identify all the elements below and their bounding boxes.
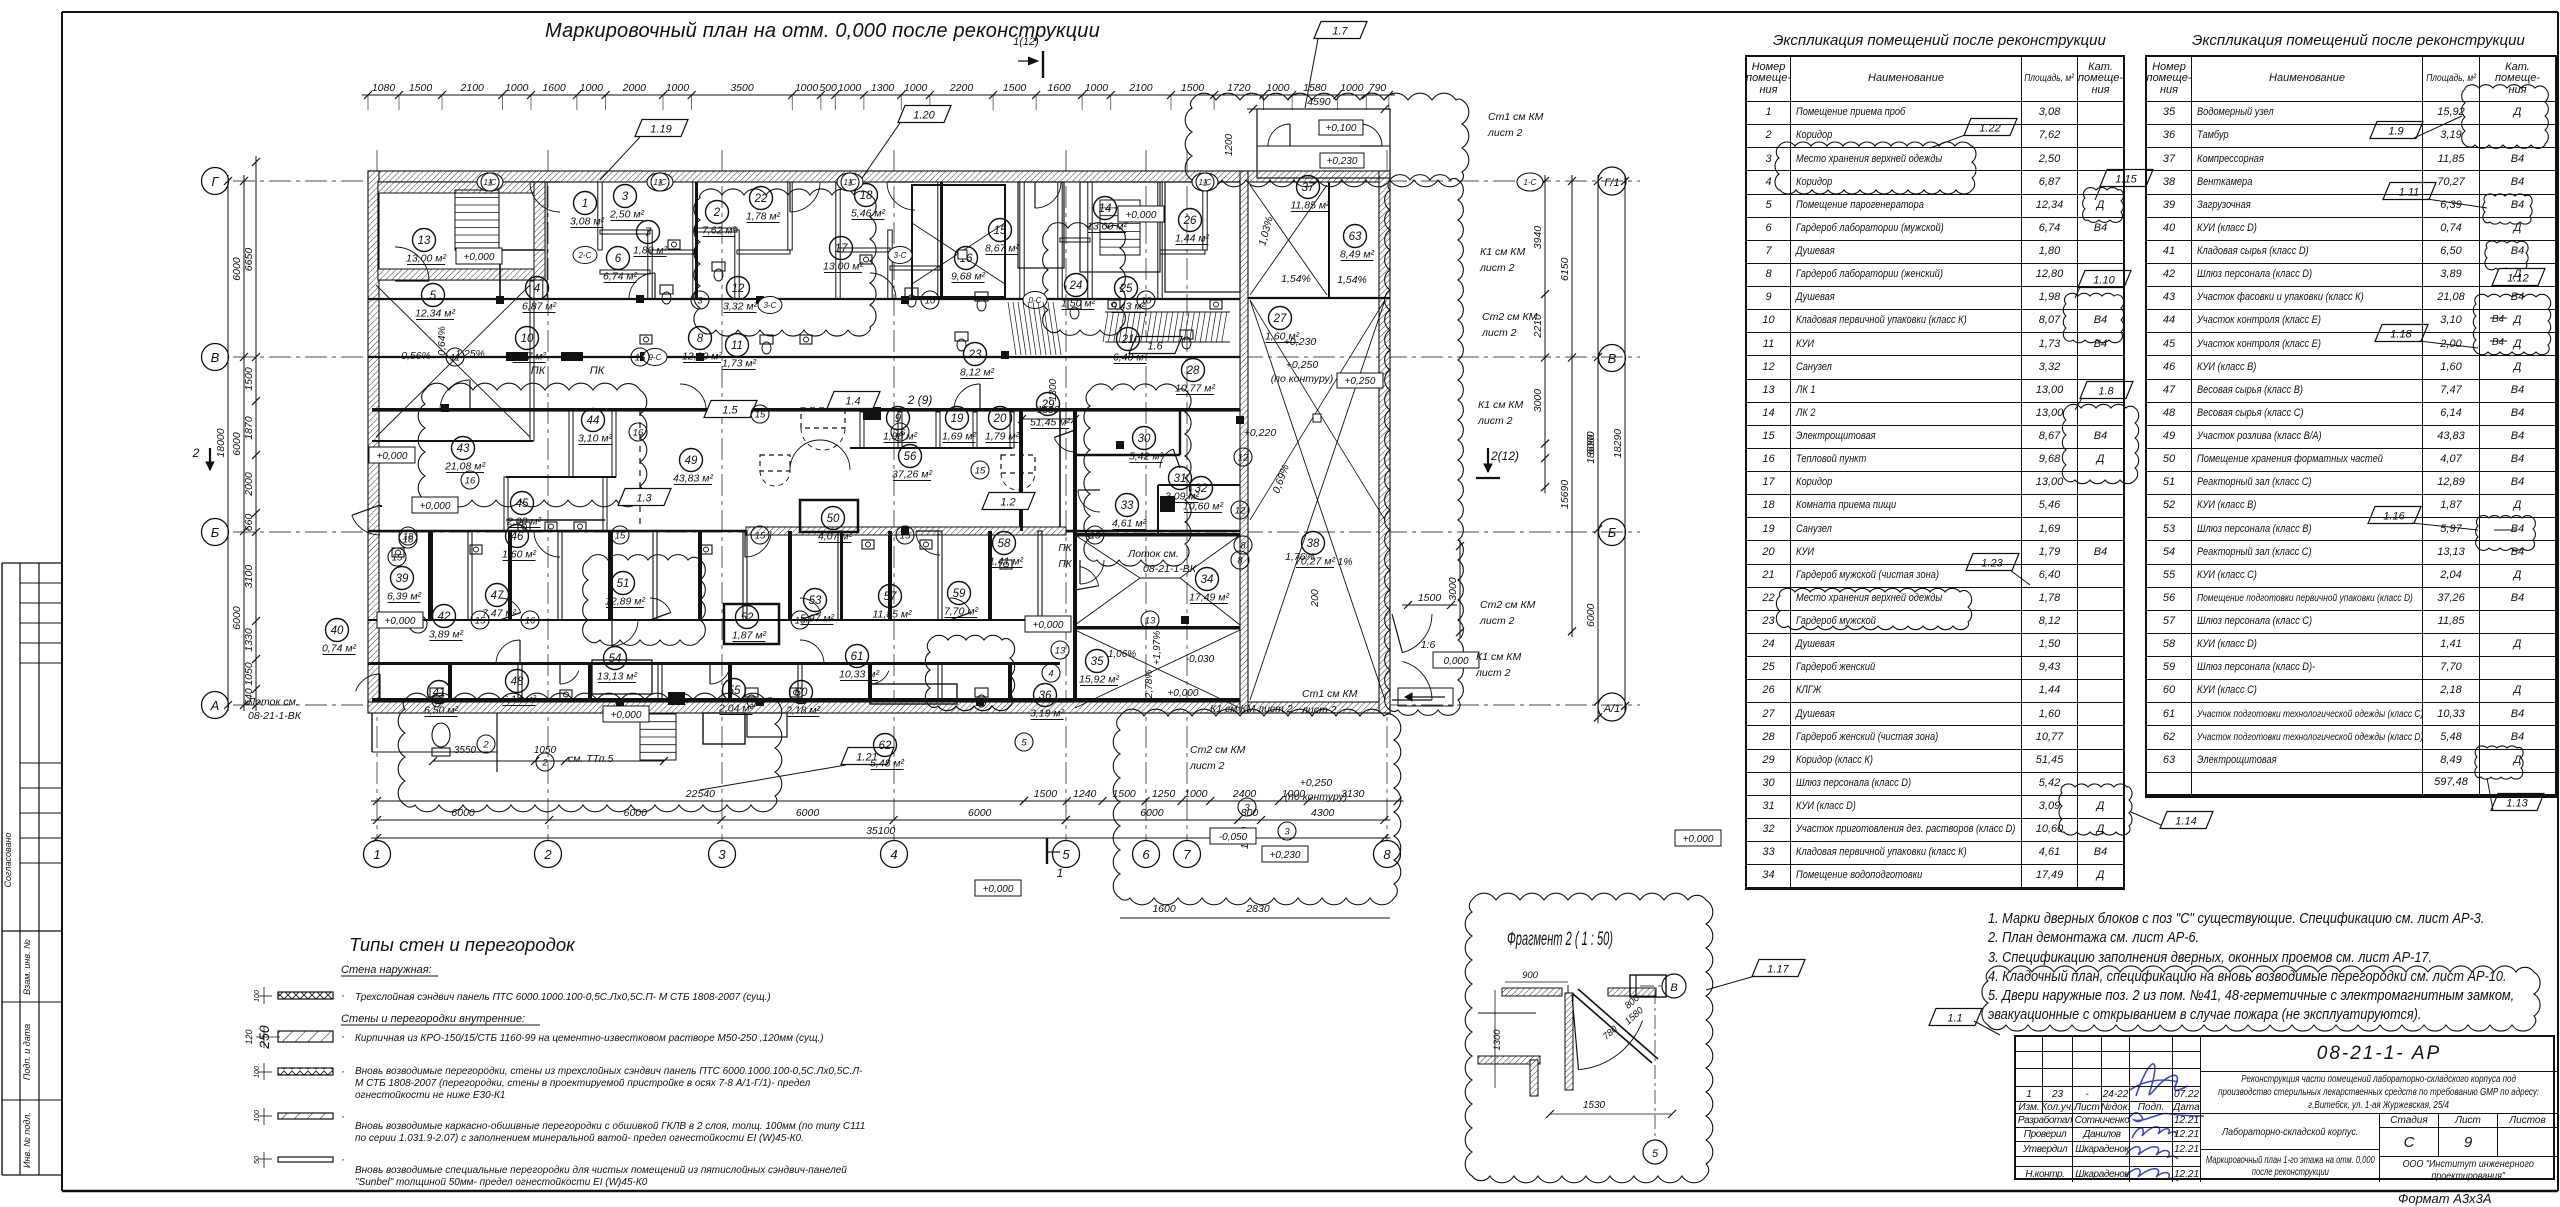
svg-text:51: 51 (617, 578, 630, 590)
svg-text:15: 15 (900, 531, 911, 542)
svg-text:18290: 18290 (1612, 429, 1624, 458)
svg-text:+0,000: +0,000 (377, 451, 408, 462)
svg-text:·: · (341, 1064, 345, 1078)
svg-text:16: 16 (633, 428, 644, 439)
svg-text:ПК: ПК (1058, 543, 1072, 554)
svg-text:1.20: 1.20 (913, 110, 935, 122)
svg-text:12,89 м²: 12,89 м² (605, 596, 645, 608)
svg-text:3-С: 3-С (764, 301, 777, 310)
svg-text:27: 27 (1273, 313, 1287, 325)
svg-text:1: 1 (582, 198, 588, 210)
svg-text:1: 1 (373, 847, 380, 862)
svg-text:24: 24 (1069, 280, 1083, 292)
svg-text:2: 2 (543, 847, 552, 862)
svg-text:1300: 1300 (1492, 1029, 1503, 1051)
svg-text:3-С: 3-С (894, 251, 907, 260)
svg-text:1000: 1000 (580, 82, 604, 94)
svg-text:1,54%: 1,54% (1281, 273, 1311, 285)
svg-text:+0,250: +0,250 (1286, 359, 1319, 371)
svg-text:12,80 м²: 12,80 м² (682, 351, 722, 363)
svg-text:6,74 м²: 6,74 м² (603, 271, 638, 283)
svg-text:7,62 м²: 7,62 м² (702, 225, 737, 237)
svg-text:Инв. № подл.: Инв. № подл. (22, 1112, 32, 1168)
svg-text:1500: 1500 (1003, 82, 1027, 94)
svg-text:1.13: 1.13 (2506, 798, 2528, 810)
svg-text:0,64%: 0,64% (436, 326, 448, 356)
svg-text:+0,000: +0,000 (1168, 688, 1199, 699)
svg-text:2100: 2100 (460, 82, 485, 94)
svg-text:3550: 3550 (454, 745, 477, 756)
svg-text:15: 15 (994, 225, 1007, 237)
svg-text:15: 15 (755, 410, 766, 421)
svg-text:6,87 м²: 6,87 м² (522, 301, 557, 313)
svg-text:15: 15 (475, 616, 486, 627)
svg-text:15: 15 (635, 353, 646, 364)
svg-text:100: 100 (254, 1066, 261, 1078)
svg-text:15: 15 (615, 531, 626, 542)
svg-text:лист 2: лист 2 (1475, 667, 1511, 679)
svg-text:1,60 м²: 1,60 м² (502, 549, 537, 561)
svg-text:48: 48 (511, 676, 524, 688)
svg-text:1,73 м²: 1,73 м² (722, 358, 757, 370)
svg-text:К1 см КМ: К1 см КМ (1478, 399, 1523, 411)
svg-text:6000: 6000 (231, 606, 243, 630)
svg-text:2: 2 (192, 446, 200, 460)
svg-text:7: 7 (1183, 847, 1191, 862)
svg-text:62: 62 (879, 740, 892, 752)
svg-text:3500: 3500 (730, 82, 754, 94)
svg-text:+0,230: +0,230 (1270, 850, 1301, 861)
svg-text:Стена наружная:: Стена наружная: (341, 964, 432, 976)
svg-text:+0,000: +0,000 (1126, 210, 1157, 221)
svg-text:5: 5 (1062, 847, 1070, 862)
svg-text:16: 16 (465, 476, 476, 487)
svg-text:Вновь возводимые перегородки,: Вновь возводимые перегородки, стены из т… (355, 1066, 863, 1077)
svg-text:1.17: 1.17 (1767, 964, 1789, 976)
svg-text:21: 21 (1121, 334, 1135, 346)
svg-text:17: 17 (835, 243, 848, 255)
svg-text:В: В (1670, 982, 1677, 994)
svg-text:52: 52 (741, 612, 754, 624)
svg-text:1,69 м²: 1,69 м² (942, 431, 977, 443)
svg-text:5: 5 (1021, 738, 1027, 749)
svg-text:Фрагмент 2 ( 1 : 50): Фрагмент 2 ( 1 : 50) (1507, 929, 1613, 950)
svg-text:1000: 1000 (1340, 82, 1364, 94)
svg-text:47: 47 (491, 590, 504, 602)
svg-text:1720: 1720 (1227, 82, 1251, 94)
svg-text:·: · (341, 1029, 345, 1043)
svg-text:31: 31 (1174, 473, 1187, 485)
svg-text:1.4: 1.4 (845, 396, 860, 408)
svg-text:6,50 м²: 6,50 м² (424, 705, 459, 717)
svg-text:2: 2 (541, 758, 548, 769)
svg-text:5: 5 (1652, 1148, 1659, 1160)
svg-text:1,78 м²: 1,78 м² (746, 211, 781, 223)
svg-text:Г/1: Г/1 (1604, 177, 1619, 189)
svg-text:1050: 1050 (243, 662, 255, 686)
svg-text:120: 120 (244, 1029, 254, 1044)
svg-text:14: 14 (1099, 203, 1112, 215)
svg-text:0-С: 0-С (1029, 296, 1042, 305)
svg-text:8: 8 (1383, 847, 1391, 862)
svg-text:2,50 м²: 2,50 м² (609, 209, 645, 221)
svg-text:(по контуру): (по контуру) (1271, 373, 1334, 385)
svg-text:Лоток см.: Лоток см. (1127, 548, 1179, 560)
svg-text:1: 1 (1057, 866, 1064, 880)
svg-text:1000: 1000 (1085, 82, 1109, 94)
svg-text:2200: 2200 (949, 82, 974, 94)
svg-text:2: 2 (713, 207, 721, 219)
svg-text:12: 12 (1238, 453, 1249, 464)
svg-text:58: 58 (998, 538, 1011, 550)
svg-text:43,83 м²: 43,83 м² (673, 473, 713, 485)
svg-text:·: · (341, 1152, 345, 1166)
svg-text:61: 61 (851, 651, 864, 663)
svg-text:7: 7 (645, 227, 652, 239)
svg-text:Согласовано: Согласовано (3, 833, 13, 888)
svg-text:15690: 15690 (1559, 480, 1571, 509)
svg-text:8: 8 (697, 333, 704, 345)
svg-text:23: 23 (968, 349, 982, 361)
svg-text:1.5: 1.5 (722, 405, 738, 417)
svg-text:4: 4 (1048, 669, 1053, 680)
svg-text:100: 100 (254, 1110, 261, 1122)
svg-text:17,49 м²: 17,49 м² (1189, 592, 1229, 604)
svg-text:1000: 1000 (505, 82, 529, 94)
svg-text:В: В (1608, 351, 1617, 366)
svg-text:6,14 м²: 6,14 м² (502, 694, 537, 706)
svg-text:Ст1 см КМ: Ст1 см КМ (1488, 111, 1544, 123)
svg-text:Кирпичная из КРО-150/15/СТБ 11: Кирпичная из КРО-150/15/СТБ 1160-99 на ц… (355, 1033, 824, 1044)
svg-text:11,85 м²: 11,85 м² (872, 609, 912, 621)
svg-text:1870: 1870 (243, 416, 255, 440)
svg-text:1000: 1000 (838, 82, 862, 94)
svg-text:6000: 6000 (1585, 431, 1597, 455)
svg-text:см. ТТп.5: см. ТТп.5 (568, 753, 613, 765)
svg-text:1-С: 1-С (1524, 178, 1537, 187)
svg-text:К1 см КМ: К1 см КМ (1480, 246, 1525, 258)
svg-text:6000: 6000 (451, 807, 475, 819)
svg-text:56: 56 (904, 451, 917, 463)
svg-text:49: 49 (685, 455, 698, 467)
svg-text:лист 2: лист 2 (1481, 327, 1517, 339)
svg-text:900: 900 (1522, 970, 1539, 981)
svg-text:Вновь возводимые каркасно-обши: Вновь возводимые каркасно-обшивные перег… (355, 1120, 865, 1132)
svg-text:1530: 1530 (1583, 1100, 1606, 1111)
svg-text:2 (9): 2 (9) (907, 393, 933, 407)
svg-text:43: 43 (457, 443, 470, 455)
svg-text:40: 40 (331, 625, 344, 637)
svg-text:32: 32 (1195, 483, 1208, 495)
svg-text:+0,000: +0,000 (385, 616, 416, 627)
svg-text:1000: 1000 (904, 82, 928, 94)
svg-text:13,00 м²: 13,00 м² (406, 253, 446, 265)
svg-text:20: 20 (993, 413, 1007, 425)
svg-text:9-С: 9-С (649, 353, 662, 362)
svg-text:1: 1 (1202, 178, 1207, 189)
svg-text:ПК: ПК (531, 365, 546, 377)
svg-text:60: 60 (795, 687, 808, 699)
svg-text:790: 790 (1369, 82, 1387, 94)
svg-text:5,48 м²: 5,48 м² (870, 758, 905, 770)
svg-text:1330: 1330 (243, 628, 255, 652)
svg-text:53: 53 (809, 595, 822, 607)
svg-text:37: 37 (1302, 182, 1315, 194)
svg-text:+0,250: +0,250 (1345, 376, 1376, 387)
svg-text:13: 13 (418, 235, 431, 247)
svg-text:54: 54 (609, 653, 622, 665)
svg-text:15: 15 (755, 531, 766, 542)
svg-text:8: 8 (1237, 556, 1243, 567)
svg-text:08-21-1-ВК: 08-21-1-ВК (248, 710, 302, 722)
svg-text:39: 39 (396, 573, 409, 585)
svg-text:4300: 4300 (1311, 807, 1335, 819)
svg-text:ПК: ПК (1058, 559, 1072, 570)
svg-text:50: 50 (254, 1156, 261, 1164)
svg-text:8,67 м²: 8,67 м² (985, 243, 1020, 255)
svg-text:Ст2 см КМ: Ст2 см КМ (1482, 311, 1538, 323)
svg-text:22: 22 (754, 193, 768, 205)
svg-text:55: 55 (728, 685, 741, 697)
svg-text:6: 6 (615, 253, 622, 265)
svg-text:Взам. инв. №: Взам. инв. № (22, 939, 32, 995)
svg-text:+0,000: +0,000 (420, 501, 451, 512)
svg-text:1580: 1580 (1303, 82, 1327, 94)
svg-text:2100: 2100 (1128, 82, 1153, 94)
svg-text:4: 4 (534, 283, 540, 295)
svg-text:Стены и перегородки внутренние: Стены и перегородки внутренние: (341, 1013, 525, 1025)
svg-text:лист 2: лист 2 (1487, 127, 1523, 139)
svg-text:8,49 м²: 8,49 м² (1340, 249, 1375, 261)
svg-text:1,06%: 1,06% (1108, 649, 1136, 660)
svg-text:38: 38 (1307, 538, 1320, 550)
svg-text:35100: 35100 (866, 825, 895, 837)
svg-text:6000: 6000 (231, 432, 243, 456)
svg-text:2000: 2000 (622, 82, 647, 94)
svg-text:1,80 м²: 1,80 м² (633, 245, 668, 257)
svg-text:+0,250: +0,250 (1300, 777, 1333, 789)
svg-text:35: 35 (1091, 656, 1104, 668)
svg-text:1000: 1000 (1266, 82, 1290, 94)
svg-text:6: 6 (1142, 847, 1150, 862)
svg-text:4,07 м²: 4,07 м² (818, 531, 853, 543)
svg-text:13,13 м²: 13,13 м² (597, 671, 637, 683)
svg-text:6000: 6000 (1140, 807, 1164, 819)
svg-text:+0,100: +0,100 (1326, 123, 1357, 134)
svg-text:10,33 м²: 10,33 м² (839, 669, 879, 681)
svg-text:5,46 м²: 5,46 м² (851, 208, 886, 220)
svg-text:4,61 м²: 4,61 м² (1112, 518, 1147, 530)
svg-text:57: 57 (884, 591, 897, 603)
svg-text:Г: Г (211, 174, 219, 189)
svg-text:-0,030: -0,030 (1186, 654, 1215, 665)
svg-text:8: 8 (1240, 541, 1246, 552)
svg-text:1300: 1300 (871, 82, 895, 94)
svg-text:3,32 м²: 3,32 м² (723, 301, 758, 313)
svg-text:1.7: 1.7 (1332, 26, 1348, 38)
svg-text:1500: 1500 (1034, 788, 1058, 800)
svg-text:6,39 м²: 6,39 м² (387, 591, 422, 603)
svg-text:лист 2: лист 2 (1301, 704, 1337, 716)
svg-text:59: 59 (953, 588, 966, 600)
svg-text:1250: 1250 (1152, 788, 1176, 800)
svg-text:1050: 1050 (534, 745, 557, 756)
svg-text:1: 1 (487, 178, 492, 189)
svg-text:1240: 1240 (1073, 788, 1097, 800)
svg-text:6150: 6150 (1559, 257, 1571, 281)
svg-text:Ст2 см КМ: Ст2 см КМ (1480, 599, 1536, 611)
svg-text:50: 50 (827, 513, 840, 525)
svg-text:1.19: 1.19 (650, 124, 671, 136)
svg-text:ПК: ПК (590, 365, 605, 377)
svg-text:Вновь возводимые специальные: Вновь возводимые специальные перегородки… (355, 1165, 847, 1176)
svg-text:2,18 м²: 2,18 м² (785, 705, 821, 717)
svg-text:1,76%: 1,76% (1285, 551, 1315, 563)
svg-text:9,68 м²: 9,68 м² (951, 271, 986, 283)
svg-text:12: 12 (1235, 506, 1246, 517)
svg-text:2000: 2000 (243, 472, 255, 497)
svg-text:30: 30 (1138, 433, 1151, 445)
svg-text:15: 15 (1090, 531, 1101, 542)
svg-text:по серии 1.031.9-2.07) с запол: по серии 1.031.9-2.07) с заполнением мин… (355, 1133, 804, 1144)
svg-text:100: 100 (254, 990, 261, 1002)
svg-text:3: 3 (1284, 827, 1290, 838)
svg-text:+0,000: +0,000 (983, 884, 1014, 895)
svg-text:Трехслойная сэндвич панель ПТС: Трехслойная сэндвич панель ПТС 6000.1000… (355, 992, 771, 1003)
svg-text:500: 500 (819, 82, 837, 94)
svg-text:660: 660 (243, 514, 255, 532)
svg-text:2-С: 2-С (578, 251, 592, 260)
svg-text:А: А (210, 698, 220, 713)
svg-text:+1,97%: +1,97% (1152, 631, 1163, 665)
svg-text:5: 5 (430, 290, 437, 302)
svg-text:1,25%: 1,25% (455, 348, 485, 360)
svg-text:37,26 м²: 37,26 м² (892, 469, 932, 481)
svg-text:4: 4 (890, 847, 897, 862)
svg-text:1.1: 1.1 (1947, 1013, 1962, 1025)
svg-text:лист 2: лист 2 (1189, 760, 1225, 772)
svg-text:780: 780 (1601, 1023, 1621, 1042)
svg-text:1500: 1500 (409, 82, 433, 94)
svg-text:2830: 2830 (1245, 903, 1270, 915)
svg-text:18000: 18000 (215, 428, 227, 457)
svg-text:В: В (211, 350, 220, 365)
svg-text:1000: 1000 (666, 82, 690, 94)
svg-text:8,07 м²: 8,07 м² (512, 351, 547, 363)
svg-text:1.2: 1.2 (1000, 497, 1015, 509)
svg-text:18: 18 (860, 190, 873, 202)
svg-text:3000: 3000 (1447, 577, 1459, 601)
svg-text:15: 15 (975, 466, 986, 477)
svg-text:10,60 м²: 10,60 м² (1183, 501, 1223, 513)
svg-text:1200: 1200 (1224, 133, 1235, 156)
svg-text:+0,220: +0,220 (1244, 427, 1277, 439)
svg-text:+0,000: +0,000 (1683, 834, 1714, 845)
svg-text:15,92 м²: 15,92 м² (1079, 674, 1119, 686)
svg-text:16: 16 (795, 616, 806, 627)
svg-text:41: 41 (433, 687, 446, 699)
svg-text:лист 2: лист 2 (1479, 615, 1515, 627)
svg-text:0,000: 0,000 (1443, 656, 1468, 667)
svg-text:34: 34 (1201, 574, 1214, 586)
svg-text:1,50 м²: 1,50 м² (1061, 298, 1096, 310)
svg-text:19: 19 (951, 413, 964, 425)
svg-text:·: · (341, 1109, 345, 1123)
svg-text:18: 18 (403, 535, 414, 546)
svg-text:200: 200 (1309, 589, 1321, 608)
svg-text:3940: 3940 (1532, 226, 1544, 250)
svg-text:Подп. и дата: Подп. и дата (22, 1024, 32, 1080)
svg-text:-0,050: -0,050 (1219, 832, 1248, 843)
svg-text:2: 2 (482, 740, 489, 751)
svg-text:1500: 1500 (243, 367, 255, 391)
svg-text:лист 2: лист 2 (1477, 415, 1513, 427)
svg-text:13: 13 (1055, 646, 1066, 657)
svg-text:1,03%: 1,03% (1256, 215, 1275, 247)
svg-text:46: 46 (511, 531, 524, 543)
svg-text:1000: 1000 (1184, 788, 1208, 800)
svg-text:1: 1 (657, 178, 662, 189)
svg-text:1%: 1% (1337, 556, 1352, 568)
svg-text:1000: 1000 (795, 82, 819, 94)
svg-text:3,08 м²: 3,08 м² (570, 216, 605, 228)
svg-text:+0,230: +0,230 (1327, 156, 1358, 167)
svg-text:6000: 6000 (231, 257, 243, 281)
svg-text:3,19 м²: 3,19 м² (1030, 708, 1065, 720)
svg-text:3000: 3000 (1532, 389, 1544, 413)
svg-text:1600: 1600 (1152, 903, 1176, 915)
svg-text:+0,000: +0,000 (464, 252, 495, 263)
svg-text:28: 28 (1186, 365, 1200, 377)
svg-text:45: 45 (516, 498, 529, 510)
svg-text:3: 3 (697, 296, 703, 307)
svg-text:1,44 м²: 1,44 м² (1175, 233, 1210, 245)
svg-text:1.3: 1.3 (636, 493, 652, 505)
svg-text:1500: 1500 (1418, 592, 1442, 604)
svg-text:6000: 6000 (1585, 603, 1597, 627)
svg-text:42: 42 (438, 611, 451, 623)
svg-text:А/1: А/1 (1603, 703, 1621, 715)
svg-text:Лоток см.: Лоток см. (247, 696, 299, 708)
svg-text:лист 2: лист 2 (1479, 262, 1515, 274)
svg-text:250: 250 (256, 1025, 272, 1050)
svg-text:1:6: 1:6 (1421, 639, 1436, 651)
svg-text:1,79 м²: 1,79 м² (985, 431, 1020, 443)
svg-text:3: 3 (718, 847, 726, 862)
svg-text:6650: 6650 (243, 248, 255, 272)
svg-text:Ст2 см КМ: Ст2 см КМ (1190, 744, 1246, 756)
svg-text:13,00 м²: 13,00 м² (823, 261, 863, 273)
svg-text:0,69%: 0,69% (1270, 463, 1291, 495)
svg-text:1,54%: 1,54% (1337, 274, 1367, 286)
svg-text:33: 33 (1121, 500, 1134, 512)
svg-text:13: 13 (1145, 616, 1156, 627)
svg-text:6000: 6000 (796, 807, 820, 819)
svg-text:15: 15 (392, 553, 403, 564)
svg-text:3,10 м²: 3,10 м² (578, 433, 613, 445)
svg-text:25: 25 (1119, 283, 1133, 295)
svg-text:8,12 м²: 8,12 м² (960, 367, 995, 379)
svg-text:3100: 3100 (243, 565, 255, 589)
svg-text:Типы стен и перегородок: Типы стен и перегородок (349, 934, 576, 955)
svg-text:·: · (341, 988, 345, 1002)
svg-text:6,40 м²: 6,40 м² (1113, 352, 1148, 364)
svg-text:3: 3 (622, 191, 629, 203)
svg-text:7,47 м²: 7,47 м² (482, 608, 517, 620)
svg-text:2,04 м²: 2,04 м² (718, 703, 754, 715)
svg-text:10: 10 (521, 333, 534, 345)
svg-text:29: 29 (1041, 399, 1055, 411)
